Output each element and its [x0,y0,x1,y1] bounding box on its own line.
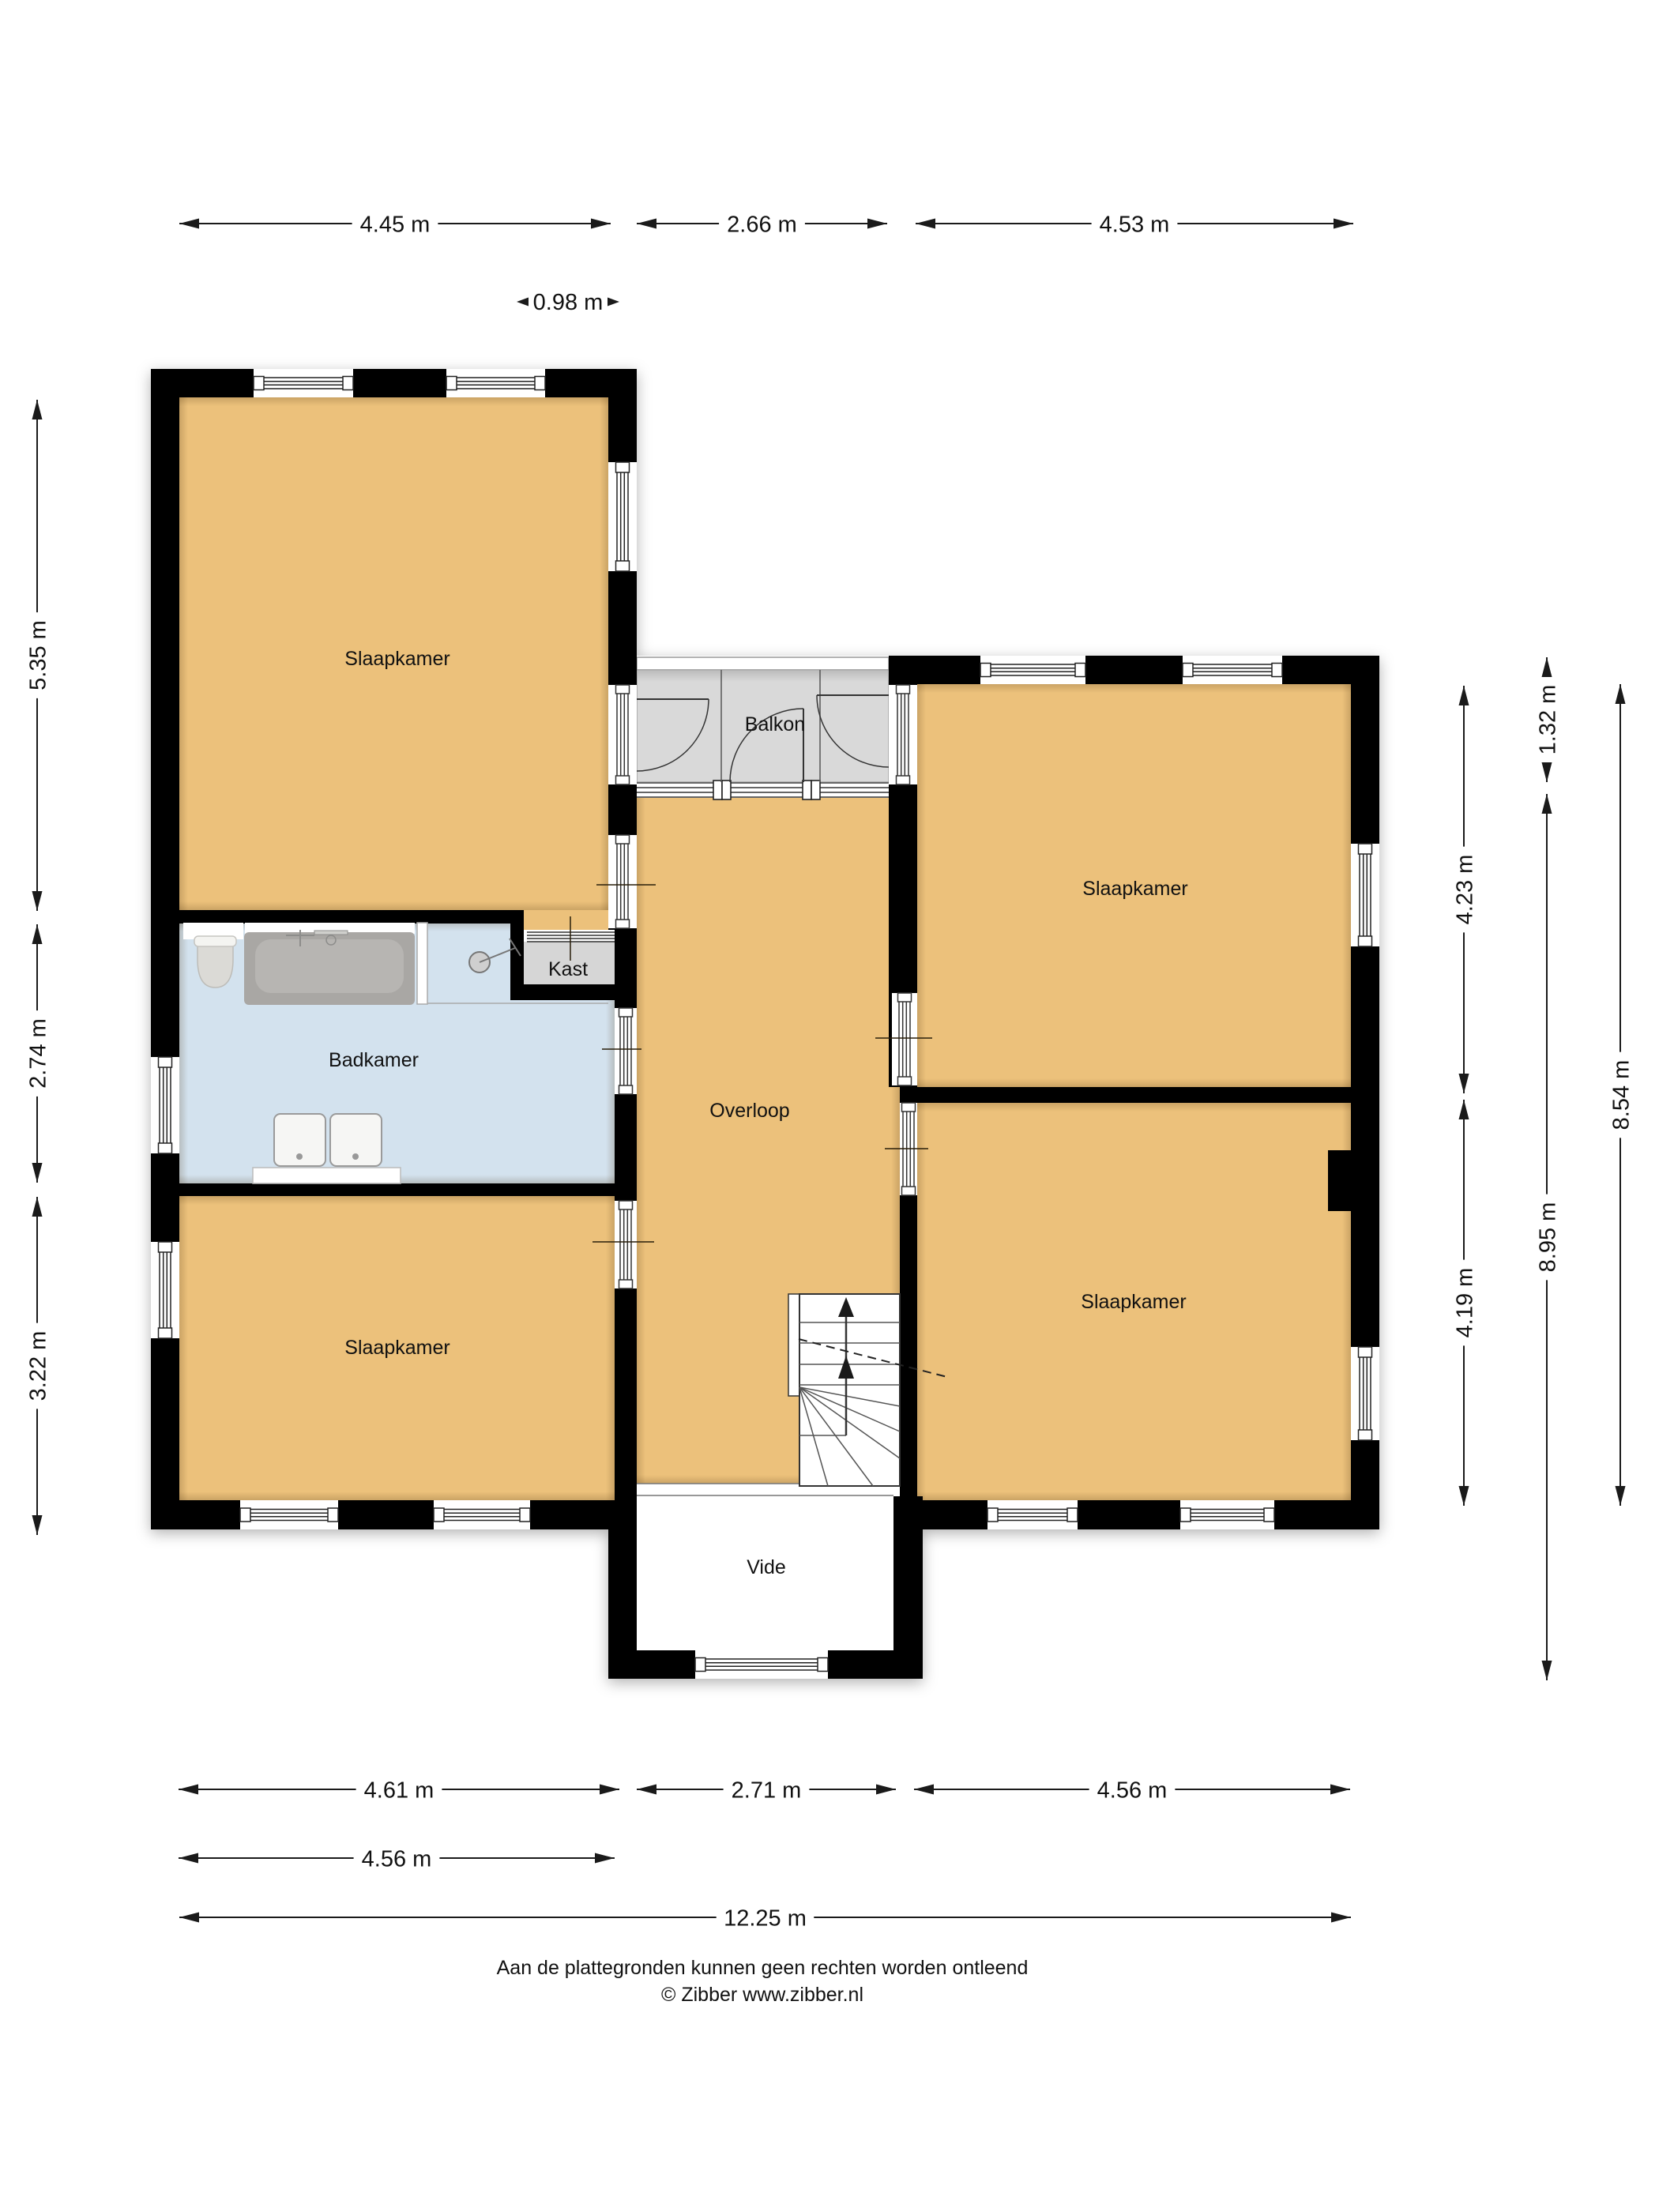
svg-text:Overloop: Overloop [709,1100,789,1122]
svg-text:4.45 m: 4.45 m [360,213,431,238]
svg-text:2.74 m: 2.74 m [26,1018,51,1089]
svg-text:Slaapkamer: Slaapkamer [1082,878,1187,900]
svg-text:Vide: Vide [747,1556,786,1578]
svg-text:4.56 m: 4.56 m [362,1847,432,1872]
svg-text:8.54 m: 8.54 m [1609,1060,1635,1130]
svg-text:3.22 m: 3.22 m [26,1331,51,1401]
svg-text:4.19 m: 4.19 m [1453,1268,1478,1338]
svg-text:© Zibber www.zibber.nl: © Zibber www.zibber.nl [661,1984,863,2006]
svg-text:12.25 m: 12.25 m [724,1906,807,1932]
svg-text:Badkamer: Badkamer [329,1049,419,1071]
svg-text:Slaapkamer: Slaapkamer [344,648,450,670]
svg-text:Aan de plattegronden kunnen ge: Aan de plattegronden kunnen geen rechten… [497,1957,1029,1979]
svg-text:4.23 m: 4.23 m [1453,855,1478,925]
svg-text:4.53 m: 4.53 m [1100,213,1170,238]
svg-text:0.98 m: 0.98 m [533,290,604,315]
svg-text:2.71 m: 2.71 m [732,1778,802,1804]
svg-text:Balkon: Balkon [745,713,805,735]
svg-text:1.32 m: 1.32 m [1536,685,1561,755]
svg-text:Slaapkamer: Slaapkamer [1081,1291,1186,1313]
svg-text:2.66 m: 2.66 m [727,213,797,238]
svg-text:5.35 m: 5.35 m [26,620,51,690]
svg-text:Slaapkamer: Slaapkamer [344,1337,450,1359]
svg-text:8.95 m: 8.95 m [1536,1202,1561,1273]
svg-text:Kast: Kast [548,958,588,980]
svg-text:4.61 m: 4.61 m [364,1778,434,1804]
svg-text:4.56 m: 4.56 m [1097,1778,1168,1804]
